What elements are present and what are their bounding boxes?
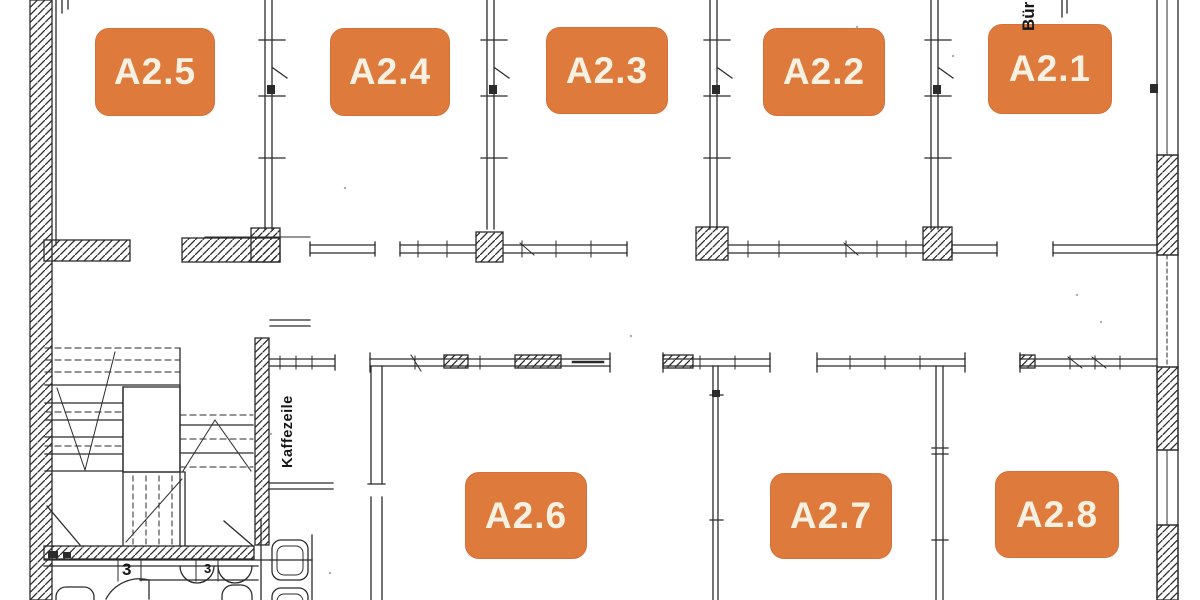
room-badge-a2-3[interactable]: A2.3: [546, 27, 668, 114]
lower-rooms-north-wall: [370, 353, 1157, 372]
room-label-buero-partial: Bür: [1016, 0, 1042, 38]
washroom: [44, 520, 312, 600]
left-exterior-wall: [30, 0, 68, 600]
room-badge-a2-5[interactable]: A2.5: [95, 28, 215, 116]
room-badge-a2-8[interactable]: A2.8: [995, 471, 1119, 558]
door-number-2: 3: [204, 562, 211, 575]
staircase: [45, 338, 269, 546]
room-badge-a2-7[interactable]: A2.7: [770, 473, 892, 559]
corridor-label-kaffezeile: Kaffezeile: [277, 390, 299, 474]
mid-wall-band: [44, 227, 1157, 262]
room-badge-a2-2[interactable]: A2.2: [763, 28, 885, 116]
floorplan-canvas: A2.5 A2.4 A2.3 A2.2 A2.1 A2.6 A2.7 A2.8 …: [0, 0, 1200, 600]
room-badge-a2-4[interactable]: A2.4: [330, 28, 450, 116]
door-swing-icon: [106, 579, 149, 599]
room-badge-a2-1[interactable]: A2.1: [988, 24, 1112, 114]
room-badge-a2-6[interactable]: A2.6: [465, 472, 587, 559]
right-exterior-wall: [1150, 0, 1178, 600]
door-number-1: 3: [122, 561, 131, 578]
